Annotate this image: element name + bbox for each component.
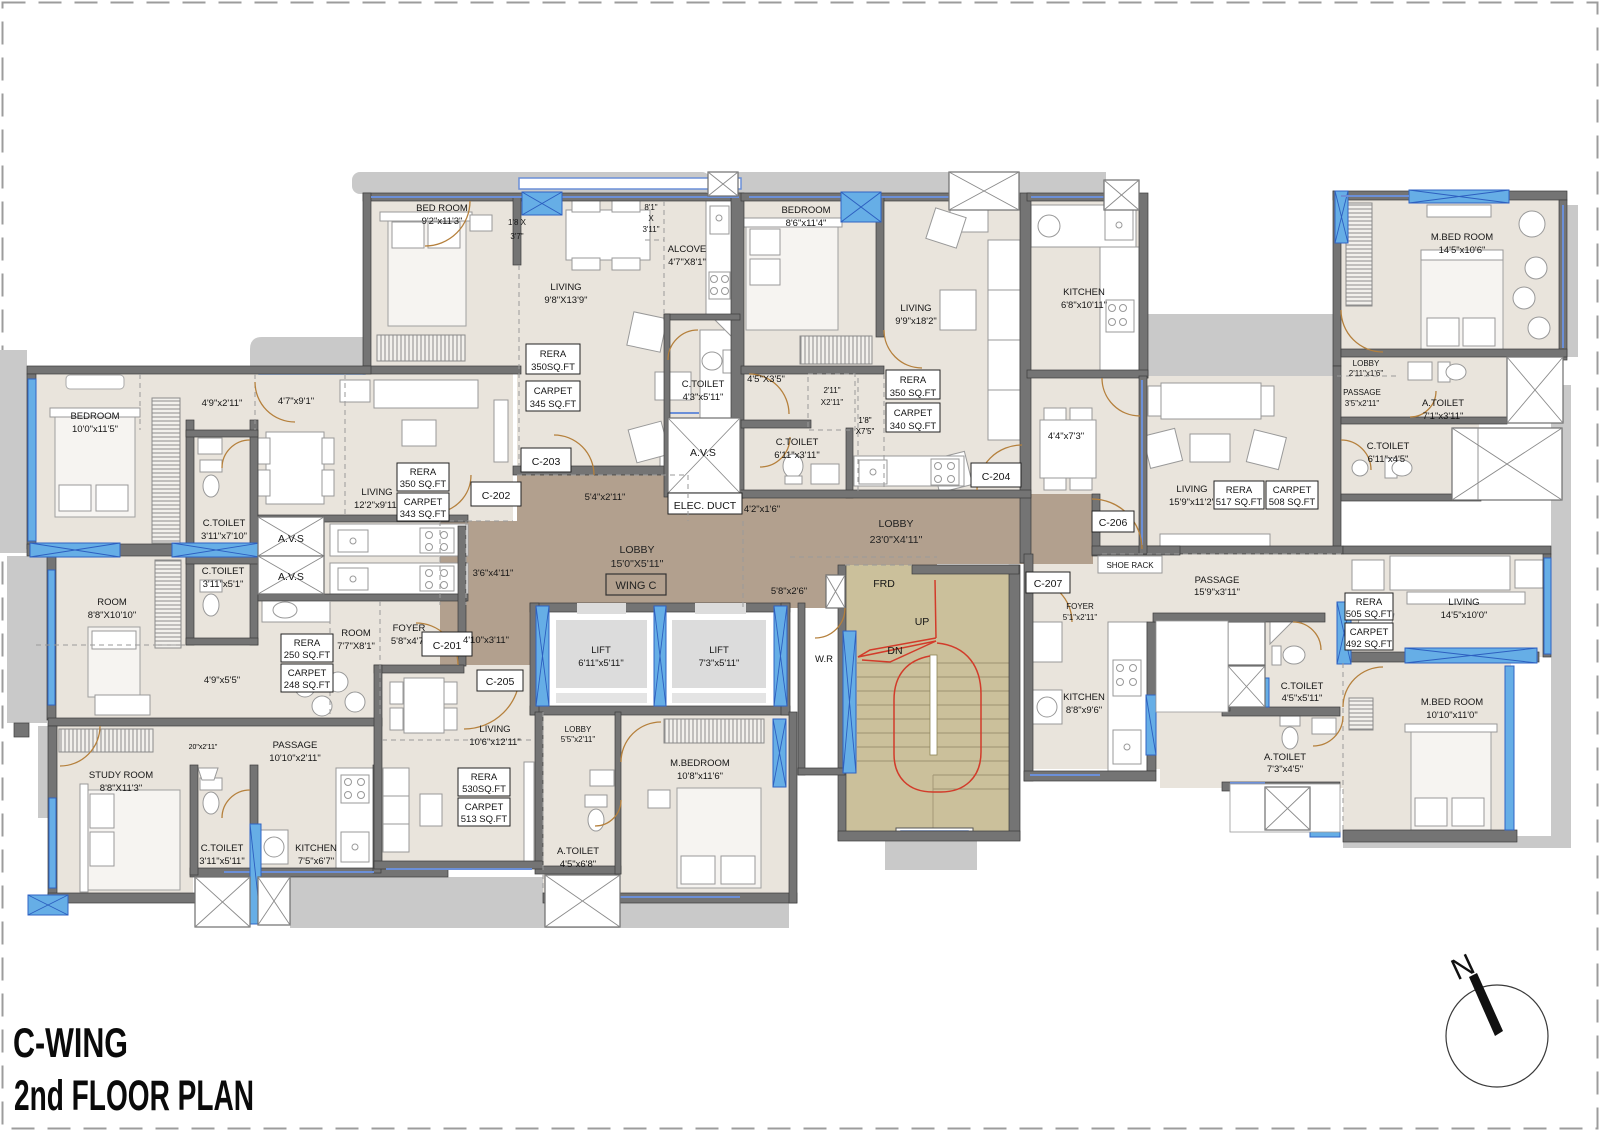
svg-text:BEDROOM: BEDROOM <box>70 411 119 422</box>
svg-text:X7'5": X7'5" <box>856 427 875 436</box>
svg-text:A.V.S: A.V.S <box>278 571 304 583</box>
svg-text:9'9"x18'2": 9'9"x18'2" <box>895 316 937 327</box>
svg-text:LIVING: LIVING <box>900 303 931 314</box>
svg-text:C.TOILET: C.TOILET <box>1367 441 1410 452</box>
svg-text:345 SQ.FT: 345 SQ.FT <box>530 399 577 410</box>
svg-text:3'11"x7'10": 3'11"x7'10" <box>201 531 247 542</box>
svg-text:SHOE RACK: SHOE RACK <box>1106 561 1154 570</box>
svg-text:5'4"x2'11": 5'4"x2'11" <box>585 492 626 503</box>
svg-text:6'8"x10'11": 6'8"x10'11" <box>1061 300 1107 311</box>
svg-text:12'2"x9'11": 12'2"x9'11" <box>354 500 400 511</box>
svg-text:2'11"x1'6": 2'11"x1'6" <box>1349 369 1384 378</box>
svg-text:CARPET: CARPET <box>288 668 327 679</box>
svg-text:4'2"x1'6": 4'2"x1'6" <box>744 504 780 515</box>
svg-text:8'6"x11'4": 8'6"x11'4" <box>786 218 827 229</box>
svg-text:KITCHEN: KITCHEN <box>1063 287 1105 298</box>
svg-text:14'5"x10'6": 14'5"x10'6" <box>1439 245 1486 256</box>
svg-text:5'5"x2'11": 5'5"x2'11" <box>561 735 596 744</box>
svg-text:LIVING: LIVING <box>479 724 510 735</box>
svg-text:508 SQ.FT: 508 SQ.FT <box>1269 497 1316 508</box>
svg-text:248 SQ.FT: 248 SQ.FT <box>284 680 331 691</box>
svg-text:3'11"x5'11": 3'11"x5'11" <box>199 856 244 867</box>
svg-text:STUDY ROOM: STUDY ROOM <box>89 770 153 781</box>
svg-text:CARPET: CARPET <box>1273 485 1312 496</box>
svg-text:CARPET: CARPET <box>1350 627 1389 638</box>
svg-text:7'7"X8'1": 7'7"X8'1" <box>337 641 375 652</box>
svg-text:KITCHEN: KITCHEN <box>295 843 337 854</box>
svg-text:BEDROOM: BEDROOM <box>781 205 830 216</box>
svg-text:RERA: RERA <box>1356 597 1383 608</box>
svg-text:4'5"X3'5": 4'5"X3'5" <box>747 374 785 385</box>
svg-text:FOYER: FOYER <box>1066 602 1094 611</box>
svg-text:4'9"x5'5": 4'9"x5'5" <box>204 675 240 686</box>
svg-text:A.TOILET: A.TOILET <box>1264 752 1306 763</box>
svg-text:C.TOILET: C.TOILET <box>203 518 246 529</box>
svg-text:PASSAGE: PASSAGE <box>273 740 318 751</box>
svg-text:ROOM: ROOM <box>341 628 371 639</box>
svg-text:LIFT: LIFT <box>591 645 611 656</box>
svg-text:350SQ.FT: 350SQ.FT <box>531 362 575 373</box>
svg-text:15'0"X5'11": 15'0"X5'11" <box>611 558 664 570</box>
svg-text:517 SQ.FT: 517 SQ.FT <box>1216 497 1263 508</box>
svg-text:10'8"x11'6": 10'8"x11'6" <box>677 771 723 782</box>
svg-text:LOBBY: LOBBY <box>619 544 654 556</box>
svg-text:CARPET: CARPET <box>534 386 573 397</box>
svg-text:ROOM: ROOM <box>97 597 127 608</box>
svg-text:8'8"X11'3": 8'8"X11'3" <box>100 783 142 794</box>
svg-text:7'3"x4'5": 7'3"x4'5" <box>1267 764 1303 775</box>
svg-text:8'8"X10'10": 8'8"X10'10" <box>88 610 136 621</box>
svg-text:RERA: RERA <box>540 349 567 360</box>
svg-text:CARPET: CARPET <box>465 802 504 813</box>
svg-text:A.TOILET: A.TOILET <box>557 846 599 857</box>
svg-text:C.TOILET: C.TOILET <box>682 379 725 390</box>
svg-text:10'0"x11'5": 10'0"x11'5" <box>72 424 118 435</box>
svg-text:LOBBY: LOBBY <box>878 518 913 530</box>
svg-text:CARPET: CARPET <box>894 408 933 419</box>
svg-text:15'9"x11'2": 15'9"x11'2" <box>1169 497 1215 508</box>
svg-text:6'11"x5'11": 6'11"x5'11" <box>578 658 623 669</box>
svg-text:ELEC. DUCT: ELEC. DUCT <box>674 500 737 512</box>
svg-text:23'0"X4'11": 23'0"X4'11" <box>870 534 923 546</box>
svg-text:RERA: RERA <box>471 772 498 783</box>
svg-text:3'5"x2'11": 3'5"x2'11" <box>1345 399 1380 408</box>
svg-text:A.TOILET: A.TOILET <box>1422 398 1464 409</box>
svg-text:RERA: RERA <box>1226 485 1253 496</box>
svg-text:C.TOILET: C.TOILET <box>776 437 819 448</box>
svg-text:513 SQ.FT: 513 SQ.FT <box>461 814 508 825</box>
svg-text:1'8": 1'8" <box>858 416 871 425</box>
svg-text:4'5"x6'8": 4'5"x6'8" <box>560 859 596 870</box>
svg-text:343 SQ.FT: 343 SQ.FT <box>400 509 447 520</box>
svg-text:250 SQ.FT: 250 SQ.FT <box>284 650 331 661</box>
svg-text:7'5"x6'7": 7'5"x6'7" <box>298 856 334 867</box>
svg-text:9'2"x11'3": 9'2"x11'3" <box>422 216 463 227</box>
svg-text:492 SQ.FT: 492 SQ.FT <box>1346 639 1393 650</box>
svg-text:20"x2'11": 20"x2'11" <box>189 744 218 751</box>
svg-text:350 SQ.FT: 350 SQ.FT <box>890 388 937 399</box>
svg-text:X: X <box>648 214 654 223</box>
svg-text:A.V.S: A.V.S <box>278 533 304 545</box>
svg-text:3'11": 3'11" <box>642 225 659 234</box>
svg-text:4'7"X8'1": 4'7"X8'1" <box>668 257 706 268</box>
svg-text:10'10"x11'0": 10'10"x11'0" <box>1426 710 1477 721</box>
svg-text:FRD: FRD <box>873 578 895 590</box>
svg-text:9'8"X13'9": 9'8"X13'9" <box>544 295 587 306</box>
svg-text:RERA: RERA <box>294 638 321 649</box>
svg-text:4'4"x7'3": 4'4"x7'3" <box>1048 431 1084 442</box>
svg-text:PASSAGE: PASSAGE <box>1195 575 1240 586</box>
svg-text:LIVING: LIVING <box>1448 597 1479 608</box>
svg-text:4'9"x2'11": 4'9"x2'11" <box>202 398 243 409</box>
svg-text:2nd FLOOR PLAN: 2nd FLOOR PLAN <box>14 1072 254 1120</box>
svg-text:ALCOVE: ALCOVE <box>668 244 707 255</box>
svg-text:4'3"x5'11": 4'3"x5'11" <box>683 392 724 403</box>
svg-text:6'11"x4'5": 6'11"x4'5" <box>1368 454 1409 465</box>
svg-text:7'1"x3'11": 7'1"x3'11" <box>1423 411 1464 422</box>
svg-text:LIVING: LIVING <box>1176 484 1207 495</box>
svg-text:LOBBY: LOBBY <box>1353 359 1380 368</box>
svg-text:530SQ.FT: 530SQ.FT <box>462 784 506 795</box>
svg-text:505 SQ.FT: 505 SQ.FT <box>1346 609 1393 620</box>
svg-text:C.TOILET: C.TOILET <box>201 843 244 854</box>
svg-text:C-202: C-202 <box>482 490 511 502</box>
svg-text:2'11": 2'11" <box>823 386 840 395</box>
svg-text:M.BED ROOM: M.BED ROOM <box>1431 232 1493 243</box>
svg-text:6'11"x3'11": 6'11"x3'11" <box>774 450 819 461</box>
svg-text:4'5"x5'11": 4'5"x5'11" <box>1282 693 1323 704</box>
svg-text:3'7": 3'7" <box>510 232 523 241</box>
svg-text:DN: DN <box>887 645 902 657</box>
svg-text:FOYER: FOYER <box>393 623 426 634</box>
svg-text:C-204: C-204 <box>982 471 1011 483</box>
svg-text:4'7"x9'1": 4'7"x9'1" <box>278 396 314 407</box>
svg-text:RERA: RERA <box>900 375 927 386</box>
svg-text:5'1"x2'11": 5'1"x2'11" <box>1063 613 1098 622</box>
svg-text:RERA: RERA <box>410 467 437 478</box>
svg-text:5'8"x2'6": 5'8"x2'6" <box>771 586 807 597</box>
svg-text:LIVING: LIVING <box>361 487 392 498</box>
svg-text:C.TOILET: C.TOILET <box>202 566 245 577</box>
svg-text:C-206: C-206 <box>1099 517 1128 529</box>
svg-text:BED ROOM: BED ROOM <box>416 203 468 214</box>
svg-text:3'6"x4'11": 3'6"x4'11" <box>473 568 514 579</box>
svg-text:LOBBY: LOBBY <box>565 725 592 734</box>
svg-text:C.TOILET: C.TOILET <box>1281 681 1324 692</box>
svg-text:M.BEDROOM: M.BEDROOM <box>670 758 730 769</box>
svg-text:8'1": 8'1" <box>644 203 657 212</box>
svg-text:LIVING: LIVING <box>550 282 581 293</box>
svg-text:C-207: C-207 <box>1034 578 1063 590</box>
svg-text:KITCHEN: KITCHEN <box>1063 692 1105 703</box>
svg-text:350 SQ.FT: 350 SQ.FT <box>400 479 447 490</box>
svg-text:8'8"x9'6": 8'8"x9'6" <box>1066 705 1102 716</box>
svg-text:340 SQ.FT: 340 SQ.FT <box>890 421 937 432</box>
svg-text:C-201: C-201 <box>433 640 462 652</box>
svg-text:10'6"x12'11": 10'6"x12'11" <box>469 737 520 748</box>
svg-text:W.R: W.R <box>815 654 833 665</box>
svg-text:C-WING: C-WING <box>13 1019 128 1066</box>
svg-text:15'9"x3'11": 15'9"x3'11" <box>1194 587 1240 598</box>
svg-text:3'11"x5'1": 3'11"x5'1" <box>203 579 244 590</box>
svg-text:A.V.S: A.V.S <box>690 447 716 459</box>
svg-text:4'10"x3'11": 4'10"x3'11" <box>463 635 509 646</box>
svg-text:C-205: C-205 <box>486 676 515 688</box>
svg-text:7'3"x5'11": 7'3"x5'11" <box>699 658 740 669</box>
svg-text:C-203: C-203 <box>532 456 561 468</box>
svg-text:PASSAGE: PASSAGE <box>1343 388 1381 397</box>
svg-text:10'10"x2'11": 10'10"x2'11" <box>269 753 320 764</box>
svg-text:X2'11": X2'11" <box>821 398 844 407</box>
svg-text:UP: UP <box>915 616 930 628</box>
svg-text:1'8 X: 1'8 X <box>508 218 527 227</box>
svg-text:LIFT: LIFT <box>709 645 729 656</box>
svg-text:WING C: WING C <box>616 580 657 592</box>
svg-text:M.BED ROOM: M.BED ROOM <box>1421 697 1483 708</box>
svg-text:CARPET: CARPET <box>404 497 443 508</box>
svg-text:14'5"x10'0": 14'5"x10'0" <box>1441 610 1488 621</box>
